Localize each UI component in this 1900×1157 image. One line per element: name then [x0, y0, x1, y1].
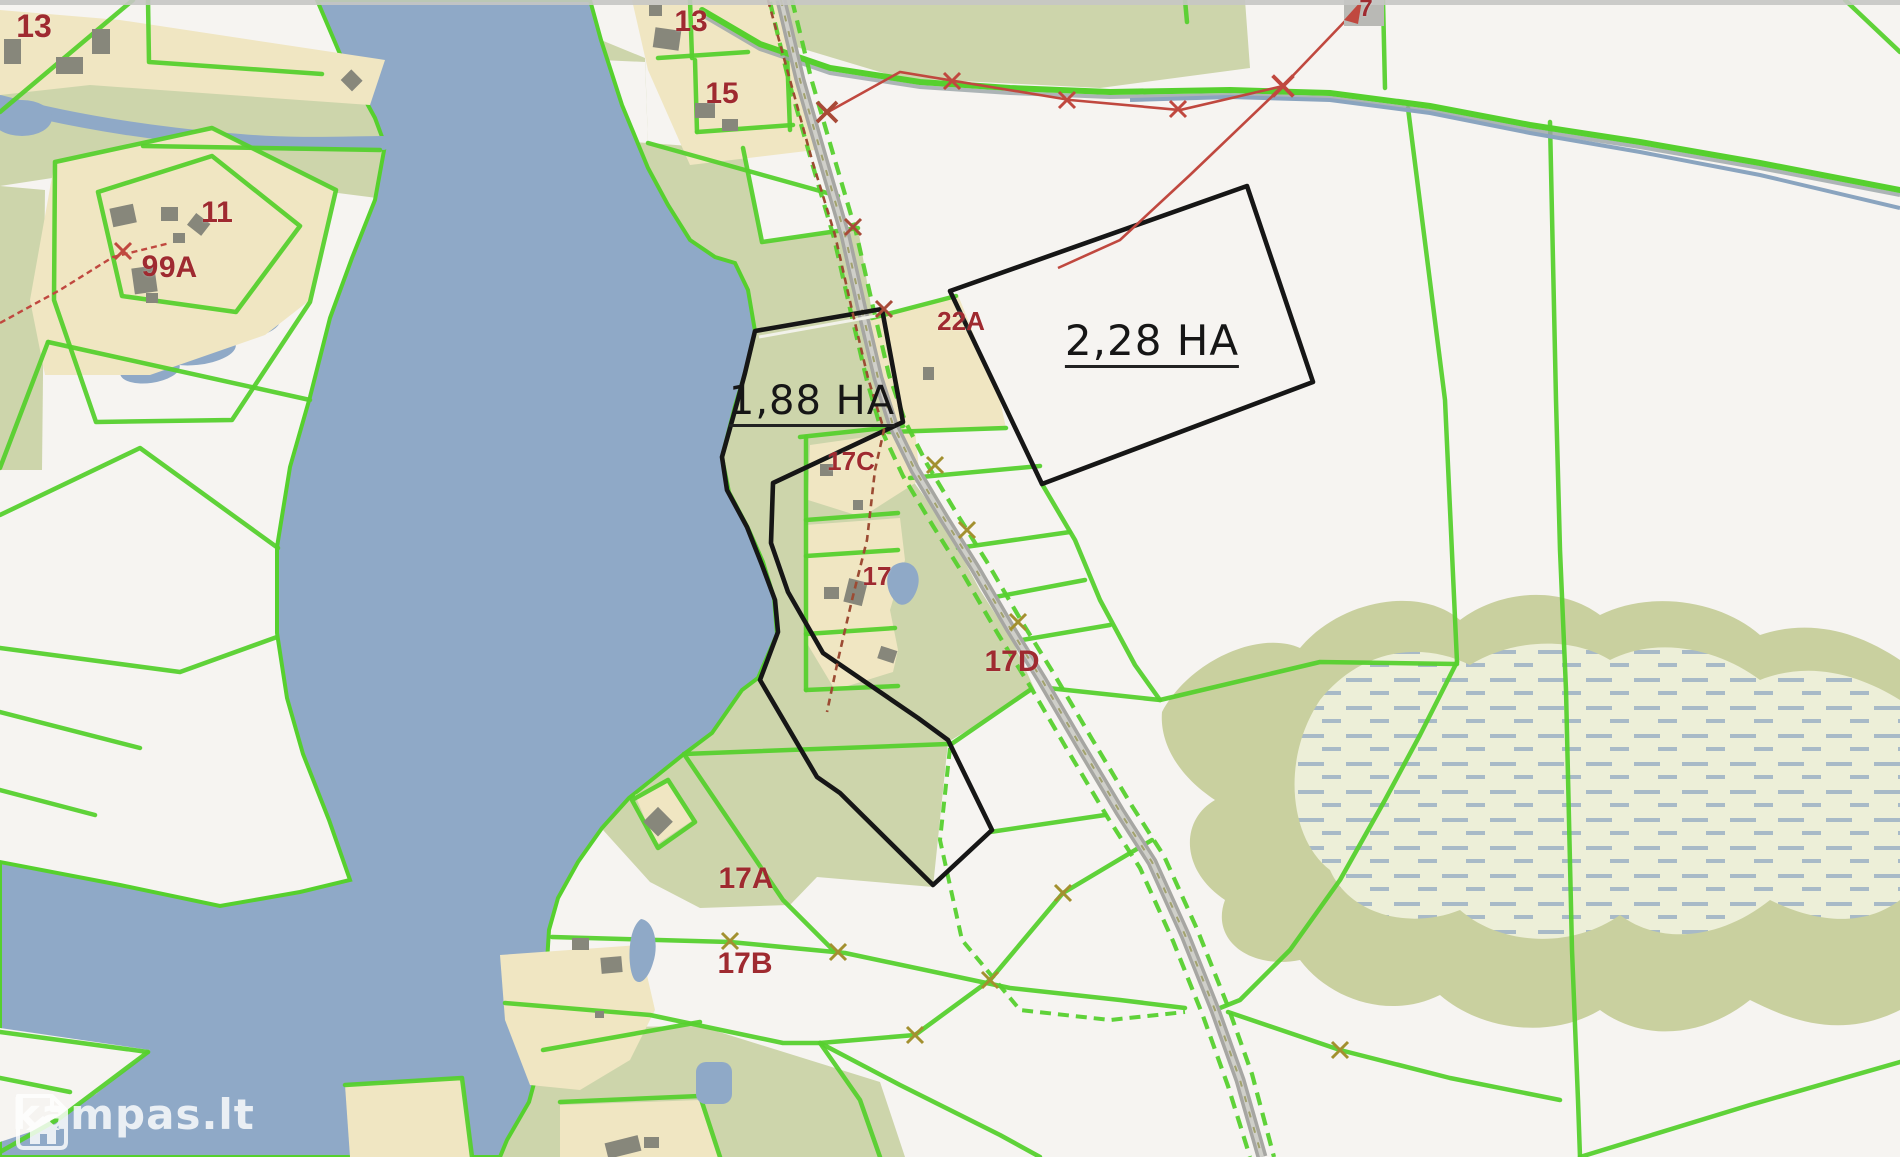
- kampas-watermark: kampas.lt: [12, 1094, 255, 1136]
- map-graphics: [0, 0, 1900, 1157]
- top-edge-artifact: [0, 0, 1900, 5]
- house-logo-icon: [12, 1094, 72, 1150]
- map-canvas: 1313151199A22A17C1717D17A17B71,88 HA2,28…: [0, 0, 1900, 1157]
